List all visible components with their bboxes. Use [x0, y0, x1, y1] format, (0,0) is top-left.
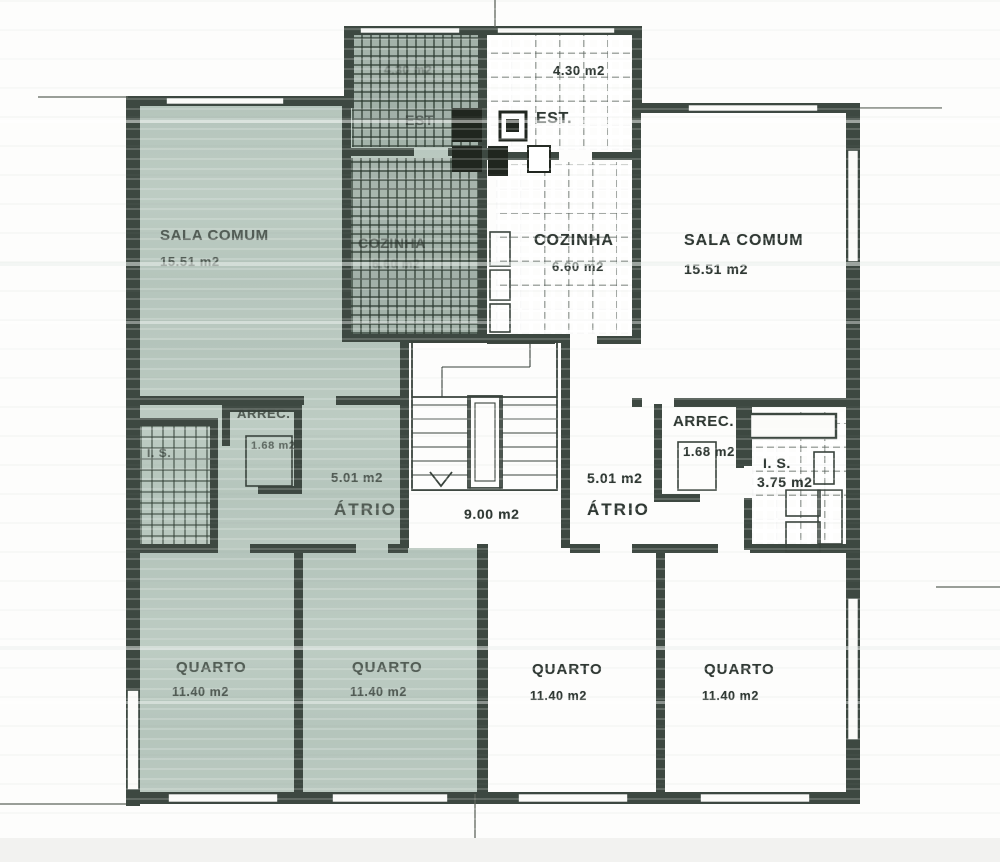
left-quarto2-area-label: 11.40 m2 — [350, 686, 407, 699]
right-est-name-label: EST. — [536, 111, 572, 127]
left-est-area-label: 4.30 m2 — [384, 64, 432, 76]
est-block-walls — [344, 26, 642, 160]
right-est-area-label: 4.30 m2 — [553, 64, 605, 77]
left-cozinha-area-label: 6.60 m2 — [372, 258, 420, 270]
right-arrec-name-label: ARREC. — [673, 414, 734, 429]
left-is-name-label: I. S. — [147, 447, 171, 459]
plan-linework — [0, 0, 1000, 862]
right-quarto2-area-label: 11.40 m2 — [702, 690, 759, 703]
right-sala-name-label: SALA COMUM — [684, 233, 804, 249]
right-quarto1-name-label: QUARTO — [532, 662, 603, 677]
right-is-area-label: 3.75 m2 — [757, 475, 813, 489]
left-atrio-area-label: 5.01 m2 — [331, 471, 383, 484]
left-quarto2-name-label: QUARTO — [352, 660, 423, 675]
right-cozinha-area-label: 6.60 m2 — [552, 260, 604, 273]
left-arrec-name-label: ARREC. — [237, 407, 290, 420]
right-cozinha-name-label: COZINHA — [534, 233, 614, 249]
left-cozinha-name-label: COZINHA — [358, 236, 426, 250]
stairwell-area-label: 9.00 m2 — [464, 507, 520, 521]
right-sala-area-label: 15.51 m2 — [684, 262, 748, 276]
right-is-name-label: I. S. — [763, 456, 791, 470]
right-quarto1-area-label: 11.40 m2 — [530, 690, 587, 703]
right-arrec-area-label: 1.68 m2 — [683, 445, 735, 458]
floor-plan-scan: SALA COMUM 15.51 m2 COZINHA 6.60 m2 4.30… — [0, 0, 1000, 862]
left-quarto1-name-label: QUARTO — [176, 660, 247, 675]
right-quarto2-name-label: QUARTO — [704, 662, 775, 677]
left-arrec-area-label: 1.68 m2 — [251, 441, 296, 452]
stair-down-arrow — [430, 472, 452, 486]
left-atrio-name-label: ÁTRIO — [334, 501, 397, 518]
left-sala-name-label: SALA COMUM — [160, 228, 269, 243]
right-atrio-name-label: ÁTRIO — [587, 501, 650, 518]
left-sala-area-label: 15.51 m2 — [160, 255, 220, 268]
left-quarto1-area-label: 11.40 m2 — [172, 686, 229, 699]
left-est-name-label: EST — [405, 113, 434, 127]
right-atrio-area-label: 5.01 m2 — [587, 471, 643, 485]
stairs — [412, 342, 557, 490]
